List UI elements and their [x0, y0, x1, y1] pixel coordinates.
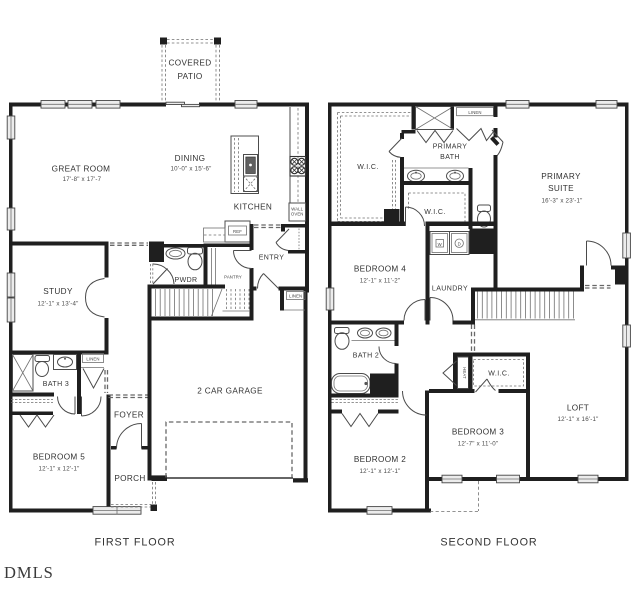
svg-text:PRIMARY: PRIMARY: [433, 144, 468, 151]
svg-text:SUITE: SUITE: [548, 184, 574, 193]
svg-text:LOFT: LOFT: [567, 404, 589, 413]
svg-text:12'-1" x 12'-1": 12'-1" x 12'-1": [359, 468, 400, 475]
svg-text:DINING: DINING: [175, 154, 206, 163]
svg-text:LINEN: LINEN: [289, 294, 302, 299]
svg-text:ENTRY: ENTRY: [259, 255, 285, 262]
svg-text:LAUNDRY: LAUNDRY: [432, 286, 468, 293]
svg-text:LINEN: LINEN: [468, 110, 481, 115]
svg-text:12'-1" x 13'-4": 12'-1" x 13'-4": [37, 301, 78, 308]
svg-text:COVERED: COVERED: [169, 59, 212, 68]
svg-text:PWDR: PWDR: [175, 277, 198, 284]
svg-text:12'-1" x 11'-2": 12'-1" x 11'-2": [360, 278, 401, 285]
svg-text:FIRST FLOOR: FIRST FLOOR: [94, 537, 175, 549]
svg-text:W.I.C.: W.I.C.: [424, 209, 445, 216]
svg-text:W: W: [438, 242, 443, 247]
svg-text:12'-1" x 12'-1": 12'-1" x 12'-1": [38, 466, 79, 473]
svg-text:LINEN: LINEN: [86, 357, 99, 362]
svg-text:FOYER: FOYER: [114, 411, 144, 420]
svg-text:BEDROOM 2: BEDROOM 2: [354, 455, 406, 464]
svg-text:12'-1" x 16'-1": 12'-1" x 16'-1": [557, 416, 598, 423]
svg-text:BATH 2: BATH 2: [353, 353, 379, 360]
svg-text:17'-8" x 17'-7: 17'-8" x 17'-7: [63, 176, 102, 183]
svg-text:16'-3" x 23'-1": 16'-3" x 23'-1": [541, 198, 582, 205]
svg-text:PRIMARY: PRIMARY: [541, 172, 581, 181]
svg-text:STUDY: STUDY: [43, 287, 73, 296]
svg-text:BATH: BATH: [440, 154, 460, 161]
svg-text:OVEN: OVEN: [291, 212, 304, 217]
svg-text:KITCHEN: KITCHEN: [234, 203, 272, 212]
svg-text:10'-0" x 15'-6": 10'-0" x 15'-6": [170, 166, 211, 173]
svg-text:D: D: [458, 242, 461, 247]
svg-text:BEDROOM 3: BEDROOM 3: [452, 428, 504, 437]
svg-text:BATH 3: BATH 3: [43, 381, 69, 388]
svg-text:SECOND FLOOR: SECOND FLOOR: [440, 537, 537, 549]
svg-text:PATIO: PATIO: [177, 72, 202, 81]
svg-text:PANTRY: PANTRY: [224, 275, 242, 280]
svg-text:HEAT: HEAT: [462, 367, 467, 379]
svg-text:12'-7" x 11'-0": 12'-7" x 11'-0": [458, 441, 499, 448]
svg-text:REF: REF: [233, 229, 242, 234]
svg-text:BEDROOM 5: BEDROOM 5: [33, 453, 85, 462]
svg-text:DMLS: DMLS: [4, 563, 54, 582]
svg-text:W.I.C.: W.I.C.: [357, 164, 378, 171]
svg-text:W.I.C.: W.I.C.: [488, 371, 509, 378]
svg-text:PORCH: PORCH: [114, 474, 145, 483]
svg-text:BEDROOM 4: BEDROOM 4: [354, 265, 406, 274]
svg-text:GREAT ROOM: GREAT ROOM: [52, 165, 111, 174]
svg-text:2 CAR GARAGE: 2 CAR GARAGE: [197, 387, 263, 396]
